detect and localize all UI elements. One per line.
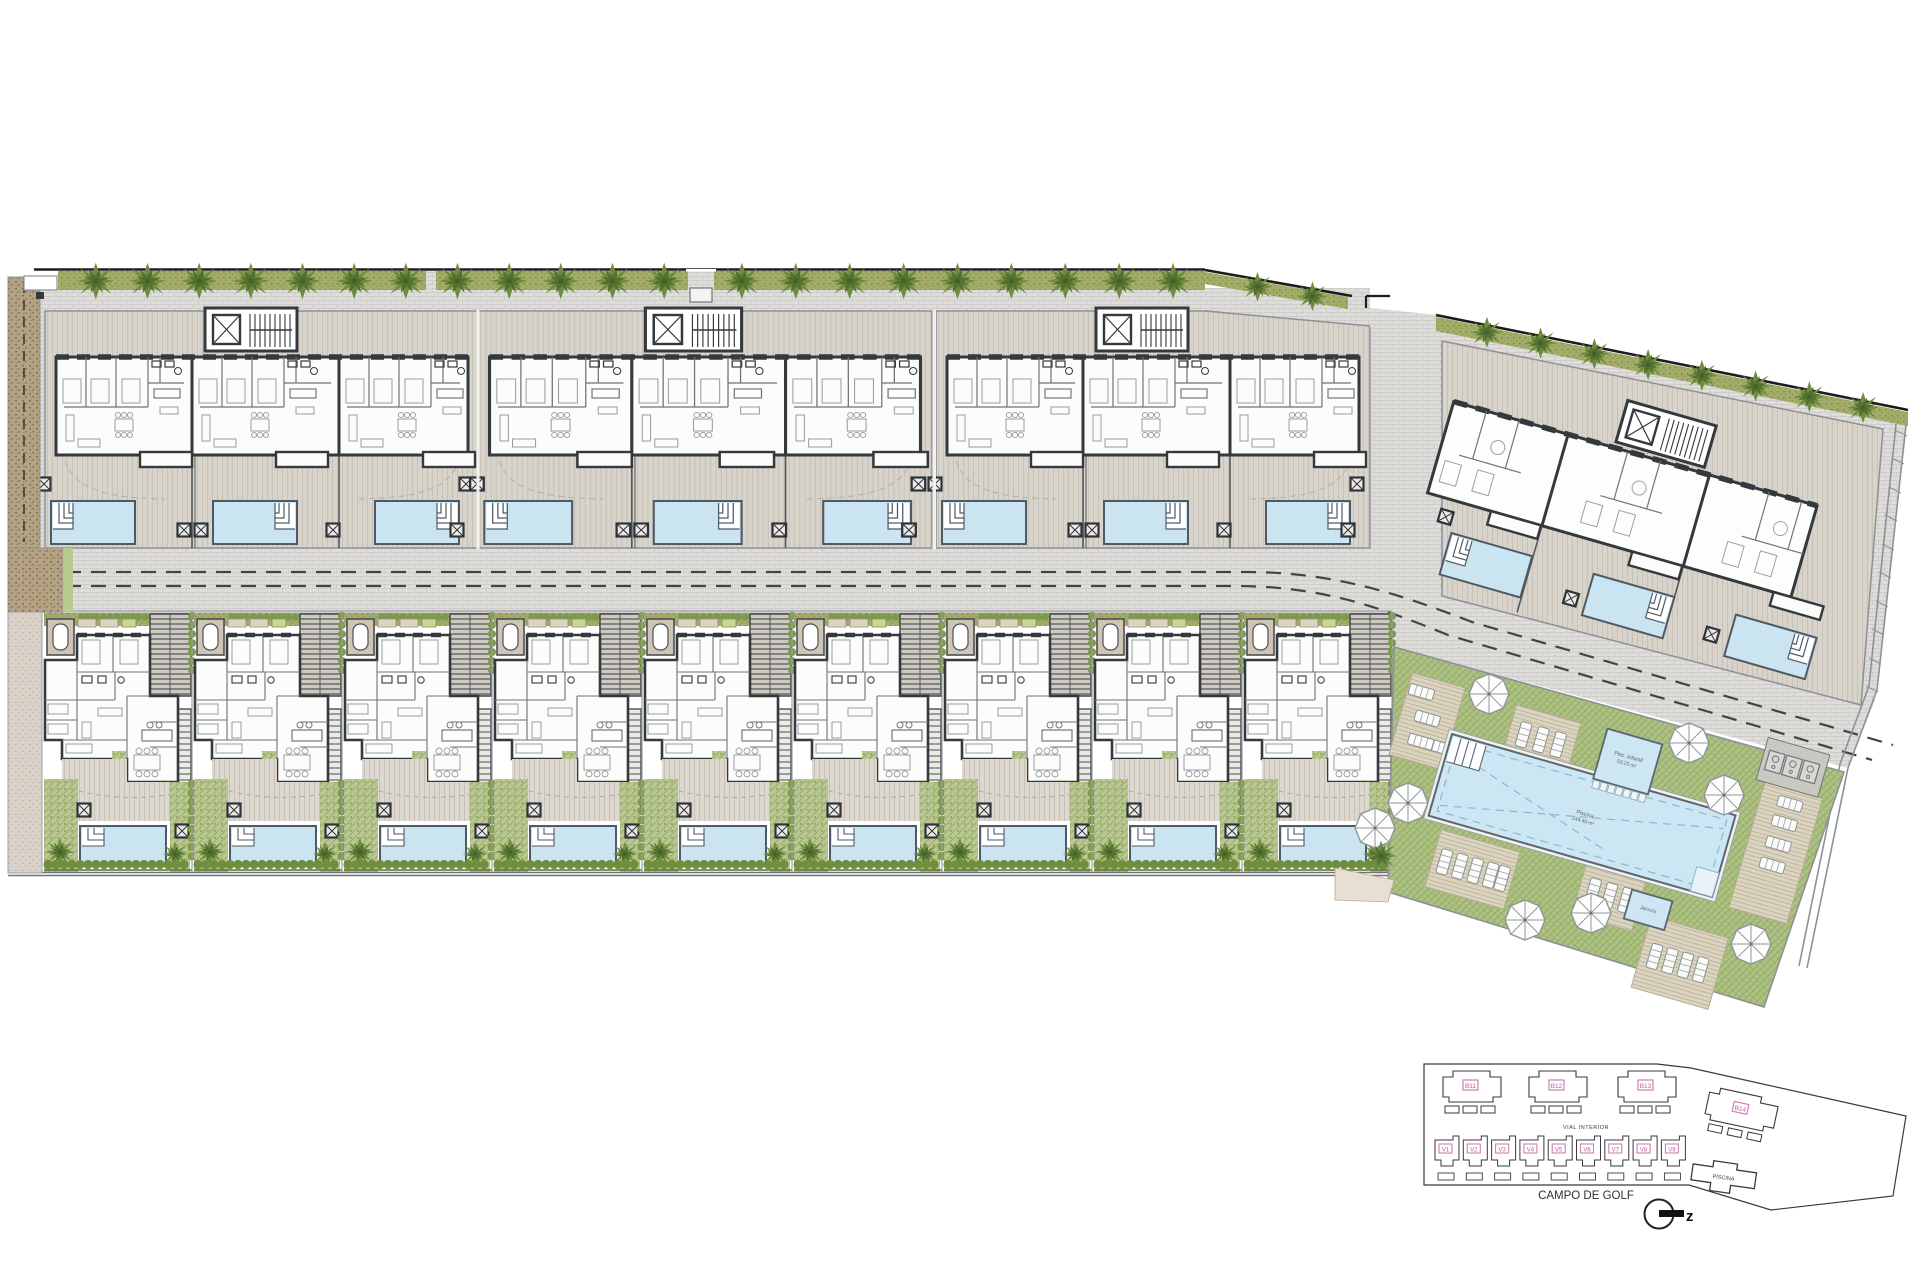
svg-text:B12: B12 [1551,1083,1563,1090]
svg-text:V7: V7 [1612,1148,1620,1154]
svg-text:V5: V5 [1555,1148,1563,1154]
svg-text:VIAL INTERIOR: VIAL INTERIOR [1563,1125,1609,1131]
svg-text:V2: V2 [1470,1148,1478,1154]
svg-text:CAMPO DE GOLF: CAMPO DE GOLF [1538,1190,1634,1202]
svg-text:V4: V4 [1527,1148,1535,1154]
svg-text:B11: B11 [1465,1083,1476,1090]
svg-text:V1: V1 [1442,1148,1450,1154]
svg-text:V6: V6 [1583,1148,1591,1154]
svg-text:V9: V9 [1668,1148,1676,1154]
svg-text:z: z [1686,1208,1694,1225]
svg-text:B13: B13 [1640,1083,1652,1090]
svg-text:V8: V8 [1640,1148,1648,1154]
svg-text:V3: V3 [1498,1148,1506,1154]
